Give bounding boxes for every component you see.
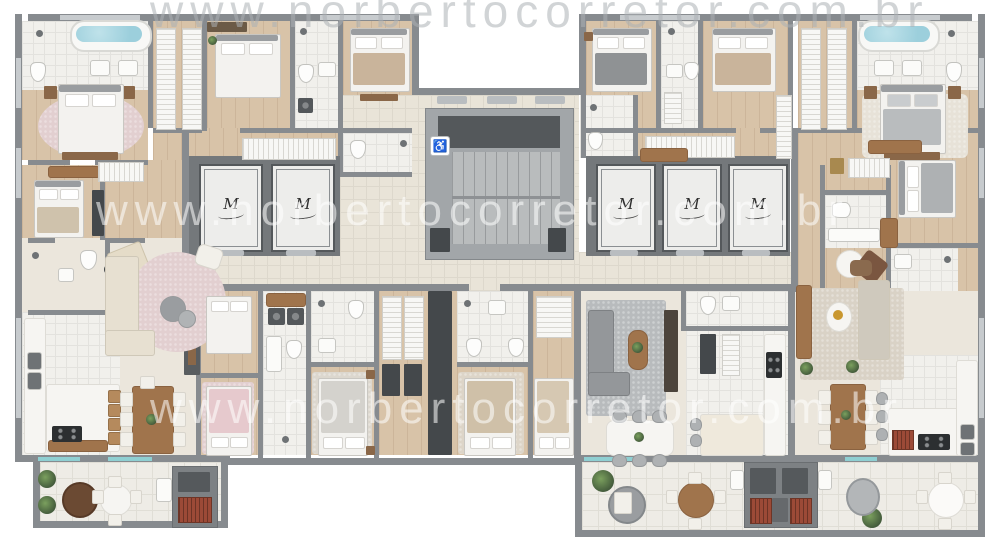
closet-right-mid bbox=[848, 158, 890, 178]
closet-bed2-left bbox=[98, 162, 144, 182]
sink-midbath-left bbox=[58, 268, 74, 282]
window-left-3 bbox=[16, 318, 21, 418]
sink-bathM-right bbox=[666, 64, 683, 78]
window-right-3 bbox=[979, 318, 984, 418]
pillow-b4l-2 bbox=[381, 37, 403, 49]
hall-top-wall bbox=[419, 88, 579, 95]
pillow-ml-1 bbox=[65, 94, 89, 107]
dchair-l3 bbox=[120, 432, 133, 447]
terrace-left-table bbox=[100, 484, 132, 516]
pillow-b3l-1 bbox=[221, 43, 245, 55]
terrace-right-table2 bbox=[928, 482, 964, 518]
bbq-right-top2 bbox=[782, 468, 808, 494]
bench-b4l bbox=[360, 94, 398, 101]
bbq-right-mid bbox=[772, 498, 788, 522]
sink-rightA bbox=[722, 296, 740, 311]
service-washer bbox=[268, 308, 285, 325]
hall-bench-l1 bbox=[242, 138, 336, 160]
bbq-right-grill2 bbox=[790, 498, 812, 524]
dchair-l1 bbox=[120, 392, 133, 407]
blanket-brm bbox=[921, 163, 953, 213]
wall-b8 bbox=[457, 362, 528, 367]
master-bed-left bbox=[58, 84, 124, 154]
window-right-1 bbox=[979, 58, 984, 108]
vanity-sink-left-2 bbox=[118, 60, 138, 76]
plant-rightB-2 bbox=[800, 362, 813, 375]
closet-rack-r2 bbox=[827, 28, 847, 130]
nightstand-mr-1 bbox=[864, 86, 877, 99]
terrace-glass-2 bbox=[108, 457, 152, 461]
terrace-right-table1 bbox=[678, 482, 714, 518]
terrace-left-plant1 bbox=[38, 470, 56, 488]
shower-head-bath2-right-mid bbox=[944, 256, 951, 263]
bench-ml bbox=[62, 152, 118, 160]
closet-rack-l2 bbox=[182, 28, 202, 130]
desk-right-mid bbox=[880, 218, 898, 248]
mid-closet-1 bbox=[382, 296, 402, 360]
bbq-left-top bbox=[178, 472, 210, 492]
stove-rightB bbox=[918, 434, 950, 450]
tl-chair3 bbox=[108, 476, 122, 488]
nightstand-ml-1 bbox=[44, 86, 57, 99]
tv-panel-rightA bbox=[664, 310, 678, 392]
bed-right-mid bbox=[898, 160, 956, 218]
floor-plan-canvas: M M M M M ♿ bbox=[0, 0, 1000, 540]
sink-bath2-left bbox=[318, 62, 336, 77]
terrace-glass-4 bbox=[845, 457, 877, 461]
bbq-right-grill1 bbox=[750, 498, 772, 524]
tr1-chair3 bbox=[688, 472, 702, 484]
coffee-plant-rightA bbox=[632, 342, 643, 353]
terrace-right-plant1 bbox=[592, 470, 614, 492]
sink-rightB-2 bbox=[960, 442, 975, 456]
suite1-shower-head bbox=[318, 300, 325, 307]
suite-bed-white bbox=[206, 296, 252, 354]
pillow-b4l-1 bbox=[355, 37, 377, 49]
bbq-right-sink2 bbox=[818, 470, 832, 490]
wall-r11 bbox=[886, 243, 978, 248]
nightstand-mr-2 bbox=[948, 86, 961, 99]
pillow-brm-1 bbox=[907, 166, 919, 188]
terrace-left-plant2 bbox=[38, 496, 56, 514]
tv-dresser-right bbox=[868, 140, 922, 154]
accessible-glyph: ♿ bbox=[433, 139, 448, 153]
headboard-b2l bbox=[35, 181, 81, 187]
washer-bath2-left bbox=[298, 98, 313, 113]
tr-lounge-cushion bbox=[614, 492, 632, 514]
sink-bath2-right-mid bbox=[894, 254, 912, 269]
suite1-stand1 bbox=[366, 370, 375, 379]
chaise-left bbox=[105, 330, 155, 356]
pillow-b3l-2 bbox=[249, 43, 273, 55]
tr2-chair1 bbox=[916, 490, 928, 504]
armchair-rightB bbox=[850, 260, 872, 276]
elevator-door-4 bbox=[676, 250, 704, 256]
tr1-chair1 bbox=[666, 490, 678, 504]
bathtub-left bbox=[70, 20, 152, 52]
dchair-rA6 bbox=[652, 454, 667, 467]
wall-l4 bbox=[338, 21, 343, 177]
pillow-b2l-1 bbox=[39, 189, 58, 200]
pillow-sbw-2 bbox=[230, 301, 248, 312]
wall-l9 bbox=[28, 160, 70, 165]
wall-b7 bbox=[311, 362, 374, 367]
hall-door-mat-3 bbox=[535, 96, 565, 104]
terrace-left-wall-w bbox=[33, 462, 40, 528]
blanket-bAr bbox=[595, 53, 647, 85]
pillow-sbp-2 bbox=[230, 437, 248, 448]
cabinet-bathM-right bbox=[664, 92, 682, 124]
headboard-ml bbox=[59, 85, 121, 92]
hall-bottom-wall-right bbox=[500, 284, 791, 291]
wall-r14 bbox=[788, 284, 795, 462]
blanket-b2l bbox=[37, 207, 79, 233]
pantry-rightA bbox=[722, 334, 740, 376]
pillow-bBr-1 bbox=[718, 37, 741, 49]
tr2-chair3 bbox=[938, 472, 952, 484]
window-left-2 bbox=[16, 148, 21, 198]
bbq-right-top1 bbox=[750, 468, 776, 494]
dchair-l6 bbox=[173, 432, 186, 447]
kitchen-left-sink1 bbox=[27, 352, 42, 370]
stove-rightA bbox=[766, 352, 782, 378]
fridge-tower-rightA bbox=[700, 334, 716, 374]
suite1-stand2 bbox=[366, 446, 375, 455]
suite3-closet bbox=[536, 296, 572, 338]
suite1-pillow1 bbox=[323, 437, 343, 449]
terrace-glass-1 bbox=[38, 457, 80, 461]
tr1-chair4 bbox=[688, 518, 702, 530]
suite3-pillow1 bbox=[539, 437, 554, 449]
shoe-sideboard-right bbox=[640, 148, 688, 162]
tr2-chair2 bbox=[964, 490, 976, 504]
watermark-middle-lower: www.norbertocorretor.com.br bbox=[150, 384, 904, 434]
pillow-bAr-1 bbox=[597, 37, 619, 49]
bathtub-left-water bbox=[76, 26, 142, 42]
suite1-sink bbox=[318, 338, 336, 353]
vanity-sink-left-1 bbox=[90, 60, 110, 76]
tr2-chair4 bbox=[938, 518, 952, 530]
dchair-l2 bbox=[120, 412, 133, 427]
vanity-sink-right-1 bbox=[874, 60, 894, 76]
vanity-sink-right-2 bbox=[902, 60, 922, 76]
suite2-shower-head bbox=[464, 300, 471, 307]
shower-head-bath3-left bbox=[400, 140, 407, 147]
window-left-1 bbox=[16, 58, 21, 108]
elevator-door-5 bbox=[742, 250, 770, 256]
accessible-icon: ♿ bbox=[430, 136, 450, 156]
stool-rA2 bbox=[690, 434, 702, 447]
headboard-brm bbox=[899, 161, 905, 215]
tl-chair4 bbox=[108, 514, 122, 526]
window-right-2 bbox=[979, 148, 984, 198]
wall-r12 bbox=[581, 95, 586, 158]
pillow-sbw-1 bbox=[211, 301, 229, 312]
service-shower-head bbox=[282, 436, 289, 443]
tl-chair2 bbox=[130, 490, 142, 504]
hall-door-mat-1 bbox=[437, 96, 467, 104]
shoe-closet-right bbox=[776, 95, 792, 159]
suite3-pillow2 bbox=[555, 437, 570, 449]
elevator-door-3 bbox=[610, 250, 638, 256]
pillow-mr-2 bbox=[914, 94, 938, 107]
coffee-table-left-2 bbox=[178, 310, 196, 328]
headboard-mr bbox=[881, 85, 943, 92]
suite1-pillow2 bbox=[345, 437, 365, 449]
box-right-mid bbox=[830, 158, 844, 174]
watermark-top: www.norbertocorretor.com.br bbox=[150, 0, 930, 38]
terrace-right-hammock bbox=[846, 478, 880, 516]
kitchen-left-sink2 bbox=[27, 372, 42, 390]
console-rightB bbox=[796, 285, 812, 359]
terrace-right-wall-w bbox=[575, 462, 582, 530]
stove-left bbox=[52, 426, 82, 442]
terrace-right-wall-s bbox=[575, 530, 985, 537]
wall-b9 bbox=[200, 373, 258, 378]
wall-l8 bbox=[343, 172, 412, 177]
shower-head-midbath-left bbox=[32, 252, 39, 259]
pillow-sbp-1 bbox=[211, 437, 229, 448]
closet-rack-l1 bbox=[156, 28, 176, 130]
terrace-left-sink bbox=[156, 478, 172, 502]
suite2-pillow1 bbox=[470, 437, 490, 449]
suite2-sink bbox=[488, 300, 506, 315]
closet-rack-r1 bbox=[801, 28, 821, 130]
sink-rightB-1 bbox=[960, 424, 975, 440]
wall-r13 bbox=[633, 95, 638, 158]
staircase-landing bbox=[438, 116, 560, 148]
sideboard-bed2-left bbox=[48, 166, 100, 178]
wall-l6 bbox=[240, 128, 338, 133]
wall-l7 bbox=[343, 128, 412, 133]
pillow-mr-1 bbox=[887, 94, 911, 107]
shower-head-left-1 bbox=[36, 30, 43, 37]
pillow-bBr-2 bbox=[745, 37, 768, 49]
wall-r15 bbox=[681, 291, 686, 331]
shower-head-bath4-right bbox=[590, 104, 597, 111]
bottom-wall-center bbox=[228, 458, 578, 465]
pillow-brm-2 bbox=[907, 190, 919, 212]
pillow-b2l-2 bbox=[60, 189, 79, 200]
bbq-left-grill bbox=[178, 497, 212, 523]
pillow-ml-2 bbox=[92, 94, 116, 107]
suite2-pillow2 bbox=[492, 437, 512, 449]
plant-rightB-1 bbox=[846, 360, 859, 373]
service-desk bbox=[266, 293, 306, 307]
service-sink bbox=[266, 336, 282, 372]
bath4-right-floor bbox=[580, 95, 638, 158]
mid-closet-2 bbox=[404, 296, 424, 360]
bbq-right-sink1 bbox=[730, 470, 744, 490]
wall-l15 bbox=[28, 310, 110, 315]
watermark-middle-upper: www.norbertocorretor.com.br bbox=[96, 186, 850, 236]
elevator-door-2 bbox=[286, 250, 316, 256]
hall-bottom-wall-left bbox=[189, 284, 469, 291]
terrace-left-wall-e bbox=[221, 462, 228, 528]
wall-r5 bbox=[586, 128, 736, 133]
sofa-rightB bbox=[858, 280, 890, 360]
tr1-chair2 bbox=[714, 490, 726, 504]
gold-bowl-rightB bbox=[833, 310, 843, 320]
pillow-bAr-2 bbox=[623, 37, 645, 49]
dchair-rA4 bbox=[612, 454, 627, 467]
blanket-b4l bbox=[353, 53, 405, 85]
shower-head-master-right bbox=[948, 30, 955, 37]
bed2-left bbox=[34, 180, 84, 238]
wall-l12 bbox=[28, 238, 55, 243]
tl-chair1 bbox=[92, 490, 104, 504]
wall-r16 bbox=[686, 326, 788, 331]
bed3-left bbox=[215, 34, 281, 98]
hall-door-mat-2 bbox=[487, 96, 517, 104]
service-dryer bbox=[287, 308, 304, 325]
dchair-rA5 bbox=[632, 454, 647, 467]
blanket-bBr bbox=[715, 53, 771, 85]
